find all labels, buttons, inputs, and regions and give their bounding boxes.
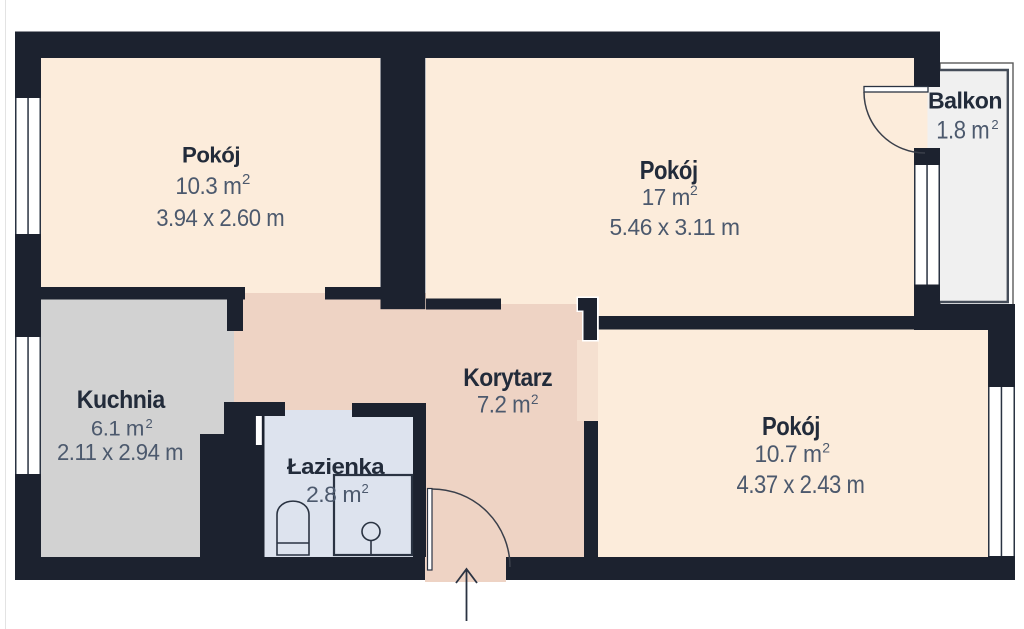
svg-text:17 m: 17 m xyxy=(642,184,690,210)
svg-text:Pokój: Pokój xyxy=(182,143,240,168)
svg-text:4.37 x 2.43 m: 4.37 x 2.43 m xyxy=(737,471,865,499)
svg-text:2.11 x 2.94 m: 2.11 x 2.94 m xyxy=(57,439,183,465)
svg-text:3.94 x 2.60 m: 3.94 x 2.60 m xyxy=(156,205,284,232)
svg-text:Balkon: Balkon xyxy=(928,88,1002,114)
svg-text:2: 2 xyxy=(531,392,538,407)
svg-text:10.3 m: 10.3 m xyxy=(175,173,241,200)
svg-text:2.8 m: 2.8 m xyxy=(306,482,361,507)
svg-text:10.7 m: 10.7 m xyxy=(755,441,822,468)
svg-text:Pokój: Pokój xyxy=(640,155,698,185)
svg-text:Korytarz: Korytarz xyxy=(463,364,552,392)
svg-text:2: 2 xyxy=(362,481,369,496)
svg-text:Pokój: Pokój xyxy=(762,411,820,441)
svg-text:1.8 m: 1.8 m xyxy=(936,117,989,145)
svg-text:2: 2 xyxy=(991,117,998,132)
svg-text:2: 2 xyxy=(242,171,250,188)
svg-text:Kuchnia: Kuchnia xyxy=(77,386,166,414)
svg-text:2: 2 xyxy=(822,440,830,456)
svg-text:6.1 m: 6.1 m xyxy=(91,416,144,441)
svg-text:2: 2 xyxy=(146,416,153,431)
svg-text:2: 2 xyxy=(690,182,698,198)
svg-text:7.2 m: 7.2 m xyxy=(477,391,530,418)
svg-text:5.46 x 3.11 m: 5.46 x 3.11 m xyxy=(610,214,740,240)
svg-text:Łazienka: Łazienka xyxy=(287,454,385,479)
